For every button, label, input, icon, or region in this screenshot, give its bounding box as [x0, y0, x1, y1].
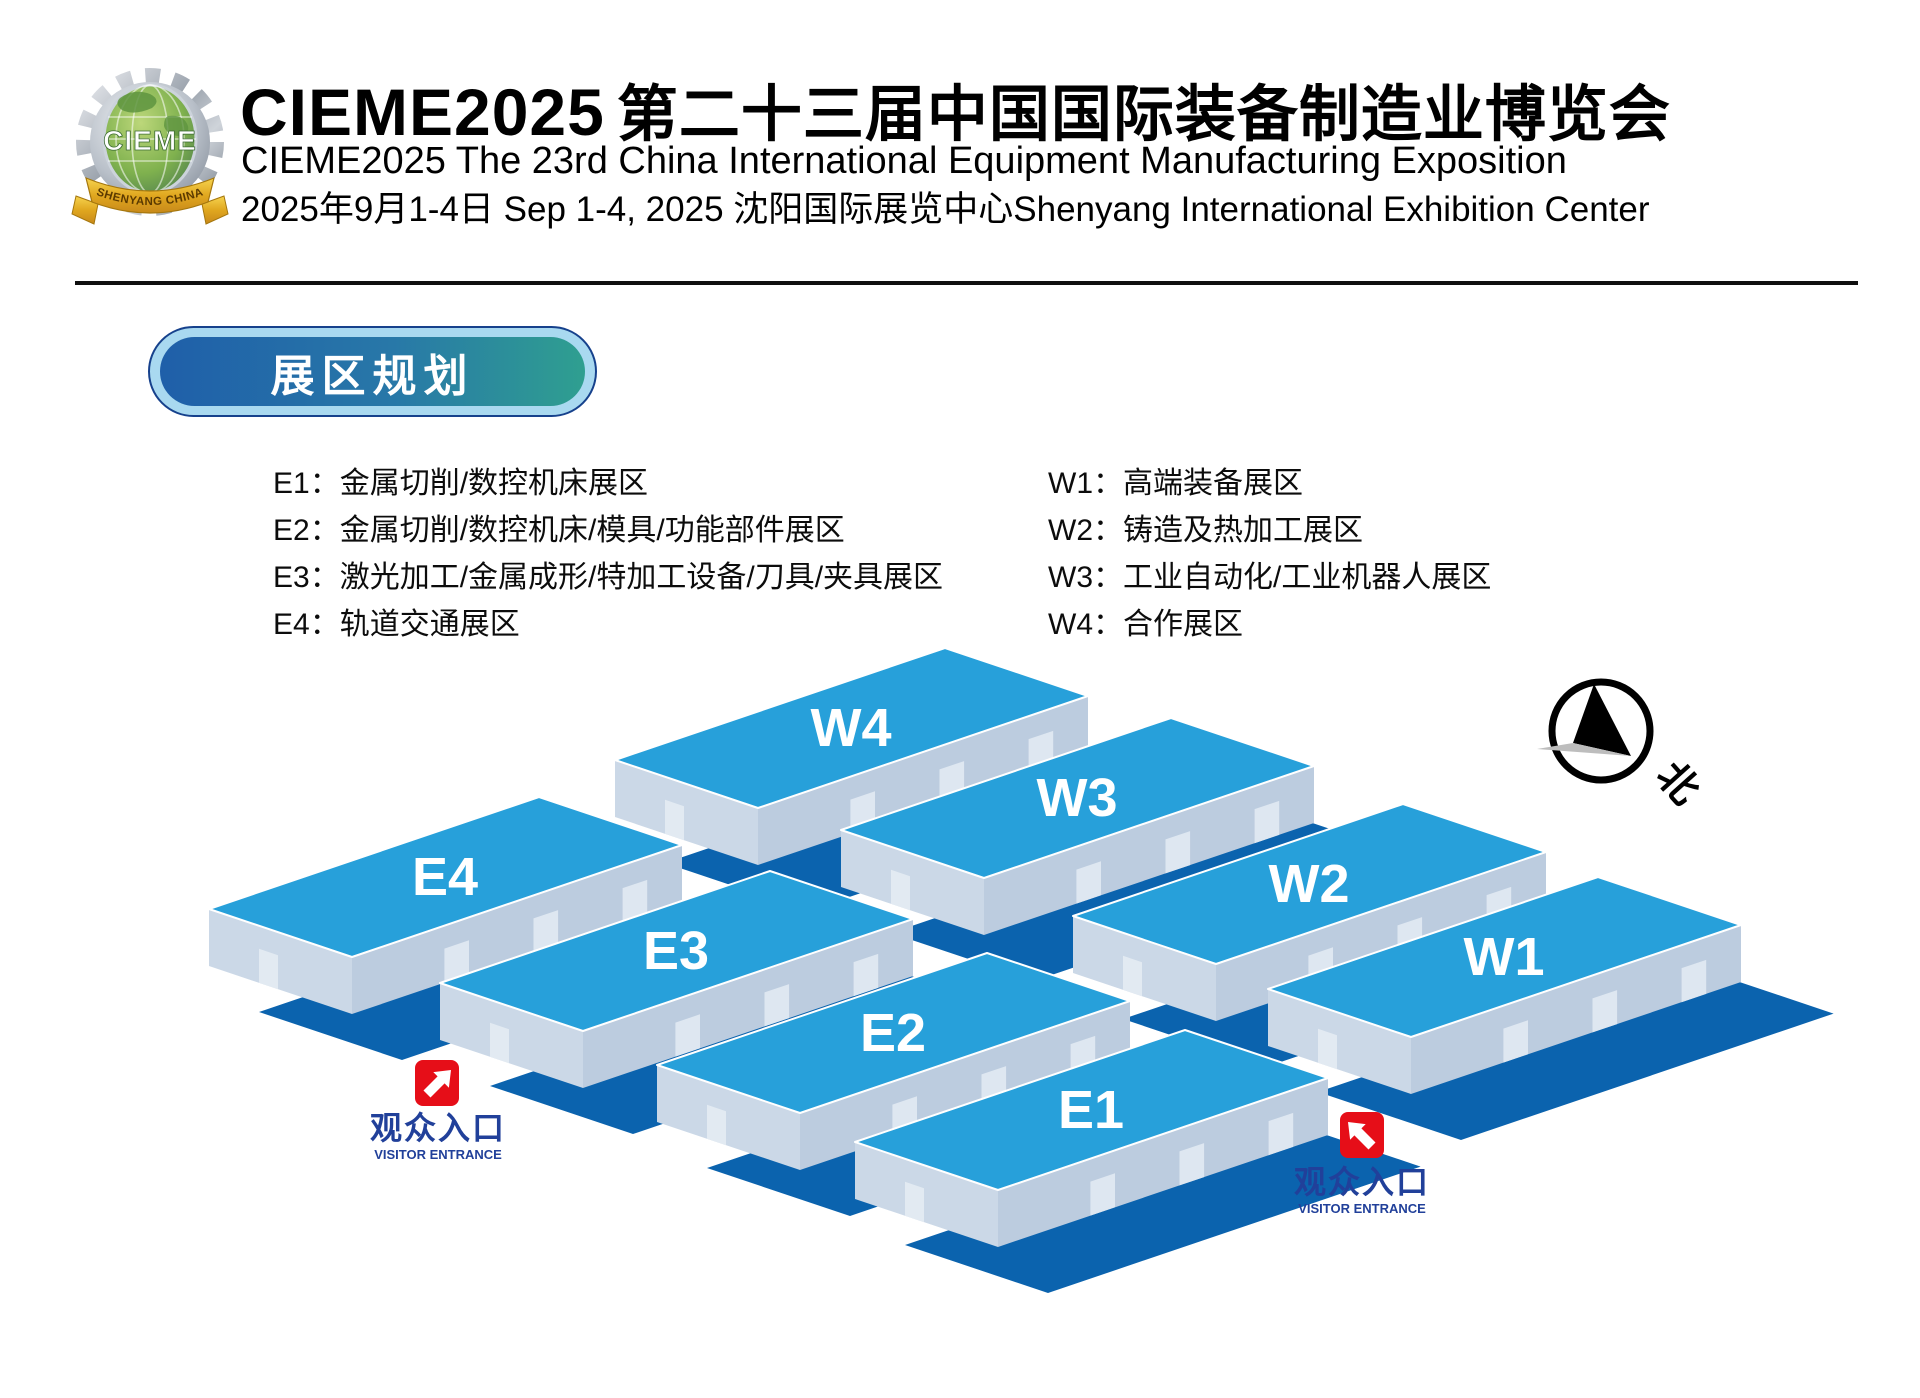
- entrance-left-en: VISITOR ENTRANCE: [374, 1147, 502, 1162]
- hall-e2-label: E2: [860, 1003, 926, 1063]
- hall-w3-label: W3: [1037, 768, 1118, 828]
- compass-north-label: 北: [1648, 754, 1707, 813]
- hall-w1-label: W1: [1464, 927, 1545, 987]
- poster-page: CIEME SHENYANG CHINA CIEME2025 第二十三届中国国际…: [0, 0, 1920, 1398]
- hall-w4-label: W4: [811, 698, 892, 758]
- hall-w2-label: W2: [1269, 854, 1350, 914]
- entrance-right-cn: 观众入口: [1294, 1164, 1430, 1200]
- entrance-left-cn: 观众入口: [370, 1110, 506, 1146]
- entrance-right-en: VISITOR ENTRANCE: [1298, 1201, 1426, 1216]
- hall-e4-label: E4: [412, 847, 478, 907]
- visitor-entrance-left: 观众入口 VISITOR ENTRANCE: [370, 1060, 506, 1162]
- hall-e3-label: E3: [643, 921, 709, 981]
- exhibition-map: W4 W3 W2 W1 E4 E3 E2 E1: [0, 0, 1920, 1398]
- compass-north-icon: 北: [1537, 682, 1707, 813]
- hall-e1-label: E1: [1058, 1080, 1124, 1140]
